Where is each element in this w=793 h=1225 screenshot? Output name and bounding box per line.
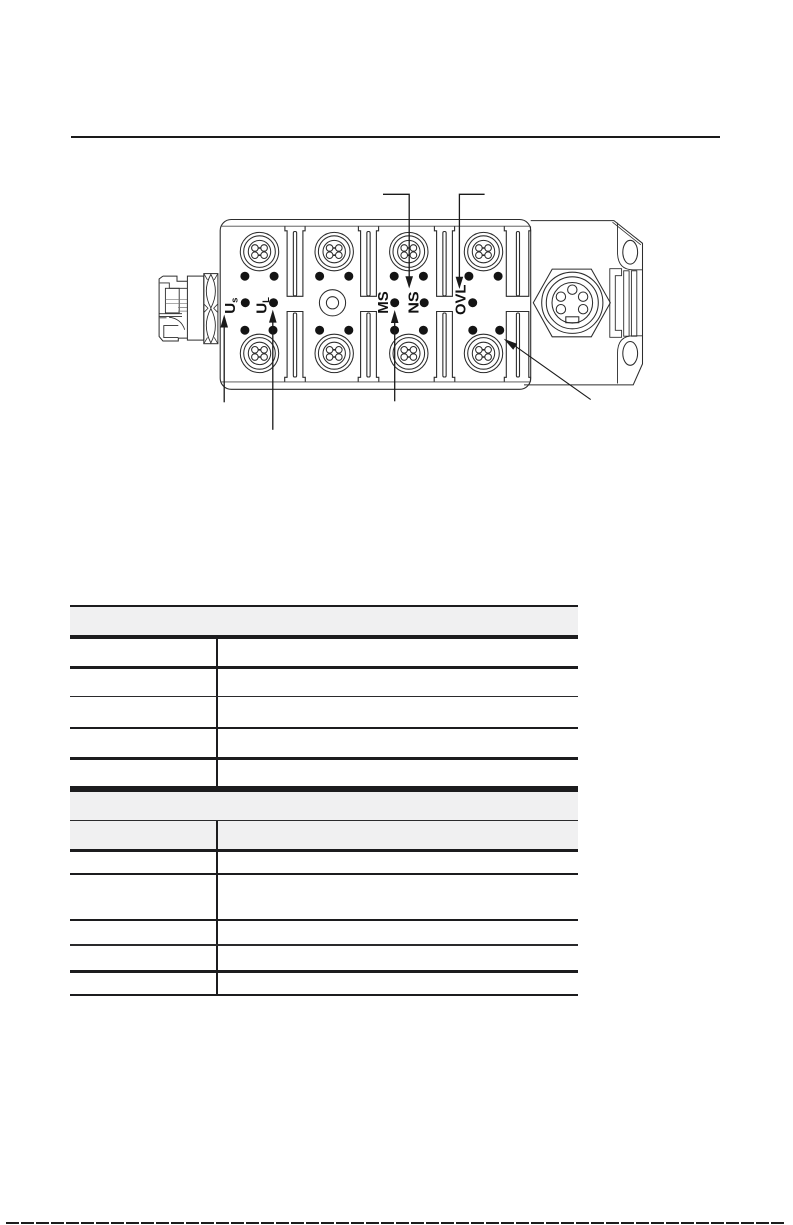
svg-text:MS: MS xyxy=(375,291,392,314)
svg-text:Us: Us xyxy=(222,298,241,314)
svg-text:OVL: OVL xyxy=(452,285,469,316)
svg-text:UL: UL xyxy=(254,297,273,314)
svg-text:NS: NS xyxy=(405,291,422,314)
